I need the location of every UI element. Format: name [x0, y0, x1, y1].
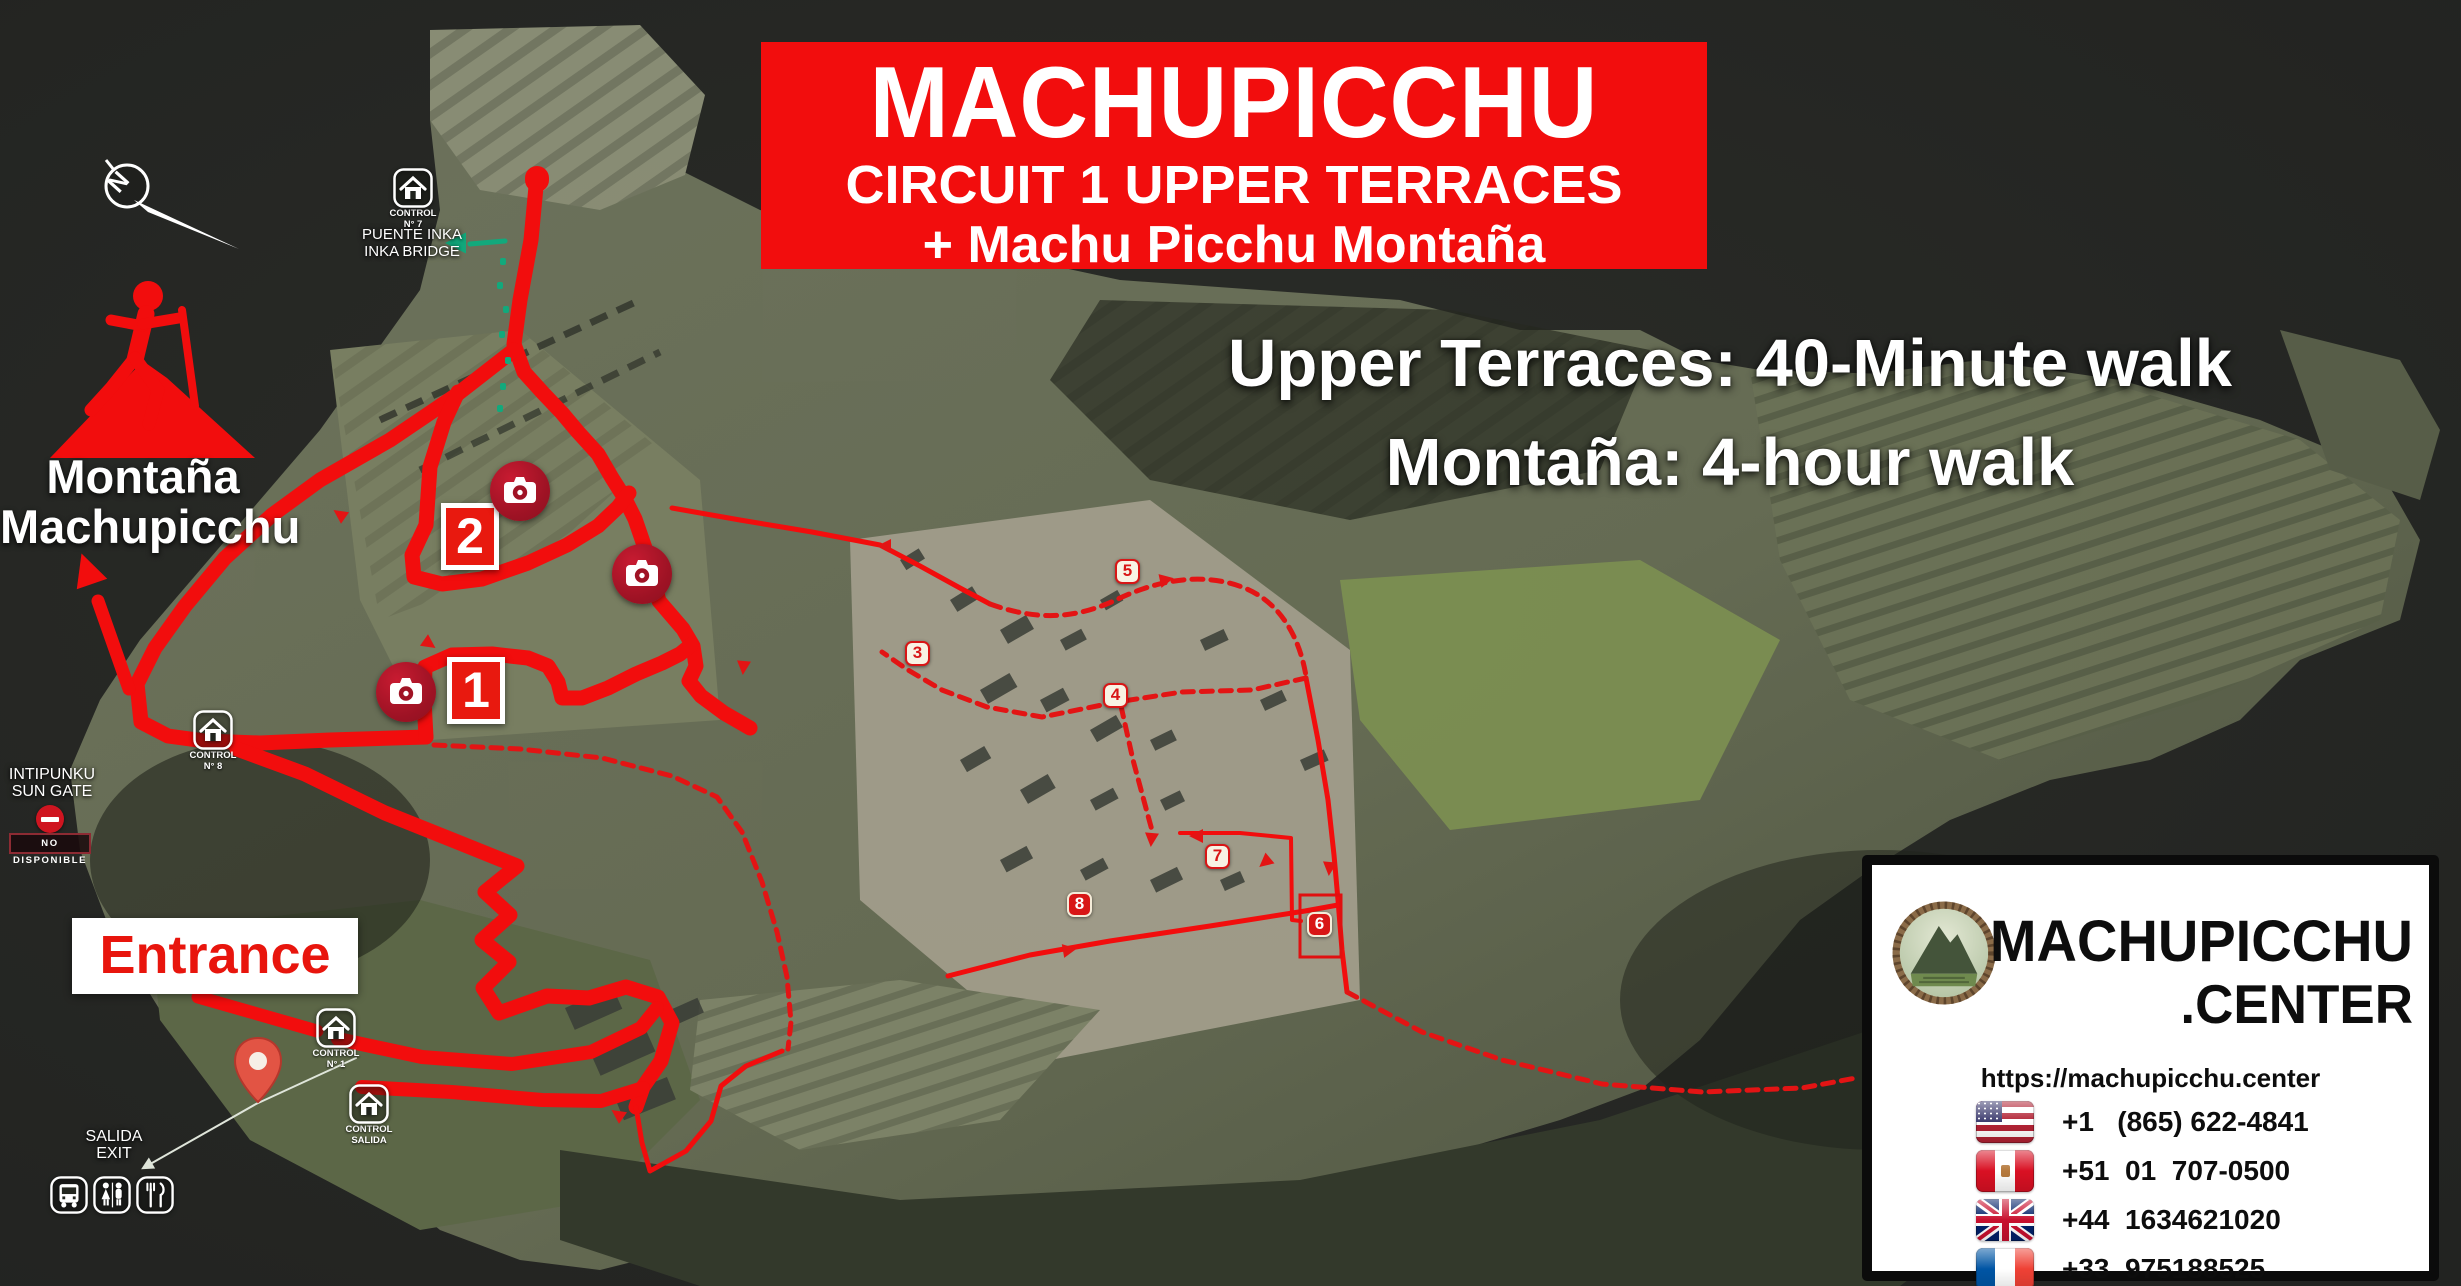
compass-rose: N — [80, 148, 260, 268]
no-entry-icon — [36, 805, 64, 833]
upper-terraces-duration: Upper Terraces: 40-Minute walk — [1010, 314, 2450, 413]
machupicchu-center-logo — [1892, 901, 1996, 1005]
trail-dot — [497, 282, 503, 289]
trail-dot — [499, 331, 505, 338]
exit-text: EXIT — [66, 1145, 162, 1162]
waypoint-marker-7: 7 — [1205, 844, 1230, 869]
montana-subtitle: + Machu Picchu Montaña — [761, 216, 1707, 274]
phone-number[interactable]: +1 (865) 622-4841 — [2062, 1106, 2309, 1138]
pe-flag-icon — [1976, 1150, 2034, 1192]
trail-dot — [500, 258, 506, 265]
sun-gate-text: SUN GATE — [0, 783, 104, 800]
phone-number[interactable]: +44 1634621020 — [2062, 1204, 2281, 1236]
contact-info-card: MACHUPICCHU .CENTER https://machupicchu.… — [1862, 855, 2439, 1281]
photo-spot-camera-icon — [612, 544, 672, 604]
brand-name: MACHUPICCHU — [1990, 907, 2413, 975]
gb-flag-icon — [1976, 1199, 2034, 1241]
montana-duration: Montaña: 4-hour walk — [1010, 413, 2450, 512]
facilities-icon-row — [50, 1176, 174, 1214]
montana-label-line2: Machupicchu — [0, 502, 286, 552]
trail-dot — [503, 306, 509, 313]
control-label: CONTROLN° 1 — [296, 1048, 376, 1070]
restroom-icon — [93, 1176, 131, 1214]
photo-stop-badge-2: 2 — [441, 503, 499, 570]
waypoint-marker-6: 6 — [1307, 912, 1332, 937]
phone-number[interactable]: +33 975188525 — [2062, 1253, 2265, 1285]
phone-row-us[interactable]: +1 (865) 622-4841 — [1976, 1097, 2309, 1146]
page-title: MACHUPICCHU — [761, 49, 1707, 157]
restaurant-icon — [136, 1176, 174, 1214]
website-url[interactable]: https://machupicchu.center — [1872, 1063, 2429, 1094]
trail-dot — [497, 405, 503, 412]
control-point-salida: CONTROLSALIDA — [329, 1084, 409, 1146]
trail-dot — [500, 383, 506, 390]
phone-row-gb[interactable]: +44 1634621020 — [1976, 1195, 2309, 1244]
bus-icon — [50, 1176, 88, 1214]
montana-hiker-icon — [45, 258, 260, 463]
brand-tld: .CENTER — [2180, 973, 2413, 1036]
control-label: CONTROLN° 8 — [173, 750, 253, 772]
sun-gate-label: INTIPUNKU SUN GATE — [0, 766, 104, 800]
waypoint-marker-4: 4 — [1103, 683, 1128, 708]
compass-needle-icon — [80, 148, 260, 268]
control-point-n1: CONTROLN° 1 — [296, 1008, 376, 1070]
photo-stop-badge-1: 1 — [447, 657, 505, 724]
walk-duration-info: Upper Terraces: 40-Minute walk Montaña: … — [1010, 314, 2450, 512]
not-available-badge: NO DISPONIBLE — [9, 833, 91, 854]
control-label: CONTROLN° 7 — [373, 208, 453, 230]
photo-spot-camera-icon — [490, 461, 550, 521]
waypoint-marker-3: 3 — [905, 641, 930, 666]
intipunku-text: INTIPUNKU — [0, 766, 104, 783]
trail-dot — [505, 357, 511, 364]
control-point-n7: CONTROLN° 7 — [373, 168, 453, 230]
photo-spot-camera-icon — [376, 662, 436, 722]
salida-text: SALIDA — [66, 1128, 162, 1145]
title-banner: MACHUPICCHU CIRCUIT 1 UPPER TERRACES + M… — [761, 42, 1707, 269]
montana-label-line1: Montaña — [0, 452, 286, 502]
control-point-n8: CONTROLN° 8 — [173, 710, 253, 772]
machu-picchu-circuit-map: N Montaña Machupicchu PUENTE INKA INKA B… — [0, 0, 2461, 1286]
fr-flag-icon — [1976, 1248, 2034, 1286]
waypoint-marker-5: 5 — [1115, 559, 1140, 584]
inka-bridge-text: INKA BRIDGE — [347, 243, 477, 260]
montana-machupicchu-label: Montaña Machupicchu — [0, 452, 286, 552]
entrance-label: Entrance — [72, 918, 358, 994]
us-flag-icon — [1976, 1101, 2034, 1143]
phone-number-list: +1 (865) 622-4841+51 01 707-0500+44 1634… — [1976, 1097, 2309, 1286]
inka-bridge-label: PUENTE INKA INKA BRIDGE — [347, 226, 477, 260]
waypoint-marker-8: 8 — [1067, 892, 1092, 917]
control-label: CONTROLSALIDA — [329, 1124, 409, 1146]
exit-label: SALIDA EXIT — [66, 1128, 162, 1162]
phone-row-fr[interactable]: +33 975188525 — [1976, 1244, 2309, 1286]
phone-number[interactable]: +51 01 707-0500 — [2062, 1155, 2290, 1187]
phone-row-pe[interactable]: +51 01 707-0500 — [1976, 1146, 2309, 1195]
circuit-subtitle: CIRCUIT 1 UPPER TERRACES — [761, 154, 1707, 216]
entrance-location-pin-icon — [232, 1036, 284, 1104]
